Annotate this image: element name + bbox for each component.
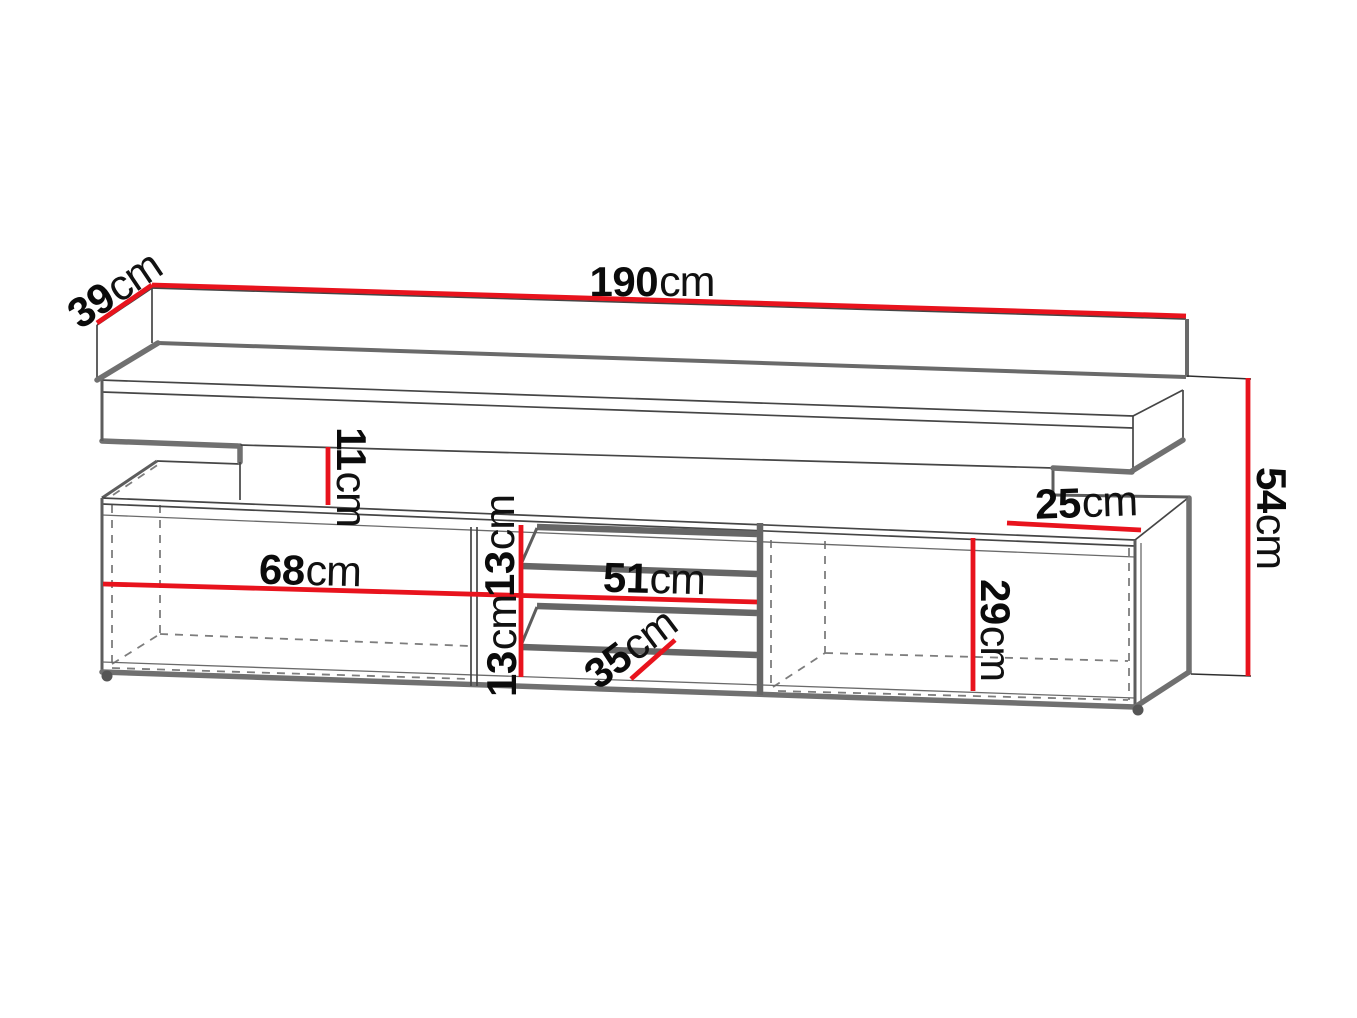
furniture-dimension-diagram: 190cm 39cm 11cm 13cm 13cm 68cm 51cm 35cm… [0,0,1357,1018]
label-13cm-upper: 13cm [476,495,524,597]
height-tick-top [1187,376,1251,379]
label-13cm-lower: 13cm [478,595,526,697]
right-foot [1133,705,1144,716]
diagram-canvas: 190cm 39cm 11cm 13cm 13cm 68cm 51cm 35cm… [0,0,1357,1018]
dimension-ticks [1187,376,1251,676]
label-54cm: 54cm [1247,467,1295,569]
label-11cm: 11cm [327,427,375,527]
label-29cm: 29cm [971,579,1019,681]
label-51cm: 51cm [602,554,705,605]
height-tick-bottom [1191,674,1251,676]
label-190cm: 190cm [590,258,715,306]
left-foot [102,671,113,682]
label-68cm: 68cm [258,546,361,597]
label-25cm: 25cm [1034,477,1138,529]
